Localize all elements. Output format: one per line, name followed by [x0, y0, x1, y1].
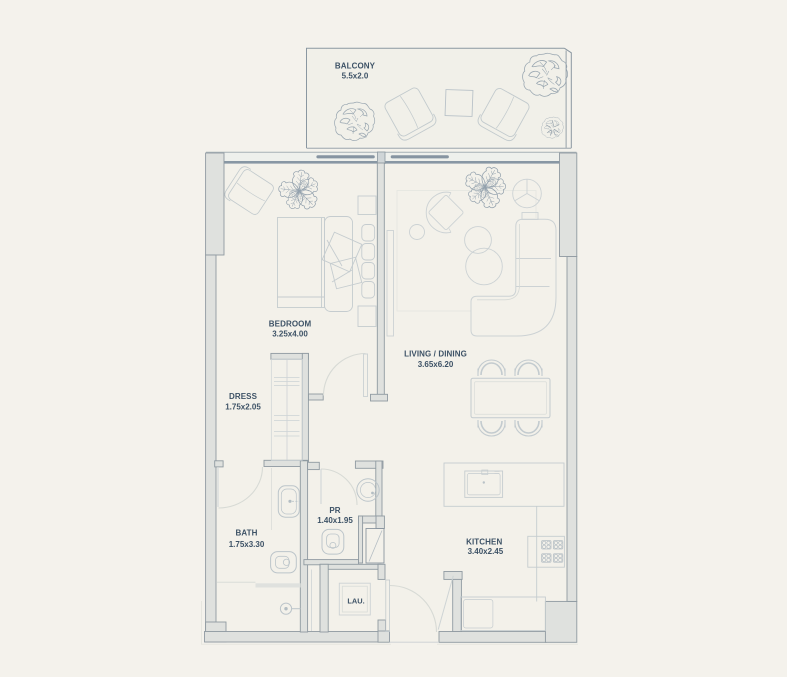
- svg-text:3.25x4.00: 3.25x4.00: [272, 330, 308, 339]
- svg-text:BEDROOM: BEDROOM: [269, 319, 312, 328]
- svg-text:PR: PR: [329, 506, 340, 515]
- svg-text:BATH: BATH: [235, 529, 257, 538]
- svg-text:LAU.: LAU.: [347, 597, 364, 606]
- svg-text:1.40x1.95: 1.40x1.95: [317, 516, 353, 525]
- svg-text:1.75x2.05: 1.75x2.05: [225, 402, 261, 411]
- svg-text:3.40x2.45: 3.40x2.45: [468, 547, 504, 556]
- svg-text:5.5x2.0: 5.5x2.0: [342, 71, 369, 80]
- svg-text:LIVING / DINING: LIVING / DINING: [404, 350, 467, 359]
- svg-text:1.75x3.30: 1.75x3.30: [229, 540, 265, 549]
- svg-text:DRESS: DRESS: [229, 392, 258, 401]
- svg-text:BALCONY: BALCONY: [335, 62, 376, 71]
- svg-text:KITCHEN: KITCHEN: [466, 537, 502, 546]
- svg-text:3.65x6.20: 3.65x6.20: [418, 360, 454, 369]
